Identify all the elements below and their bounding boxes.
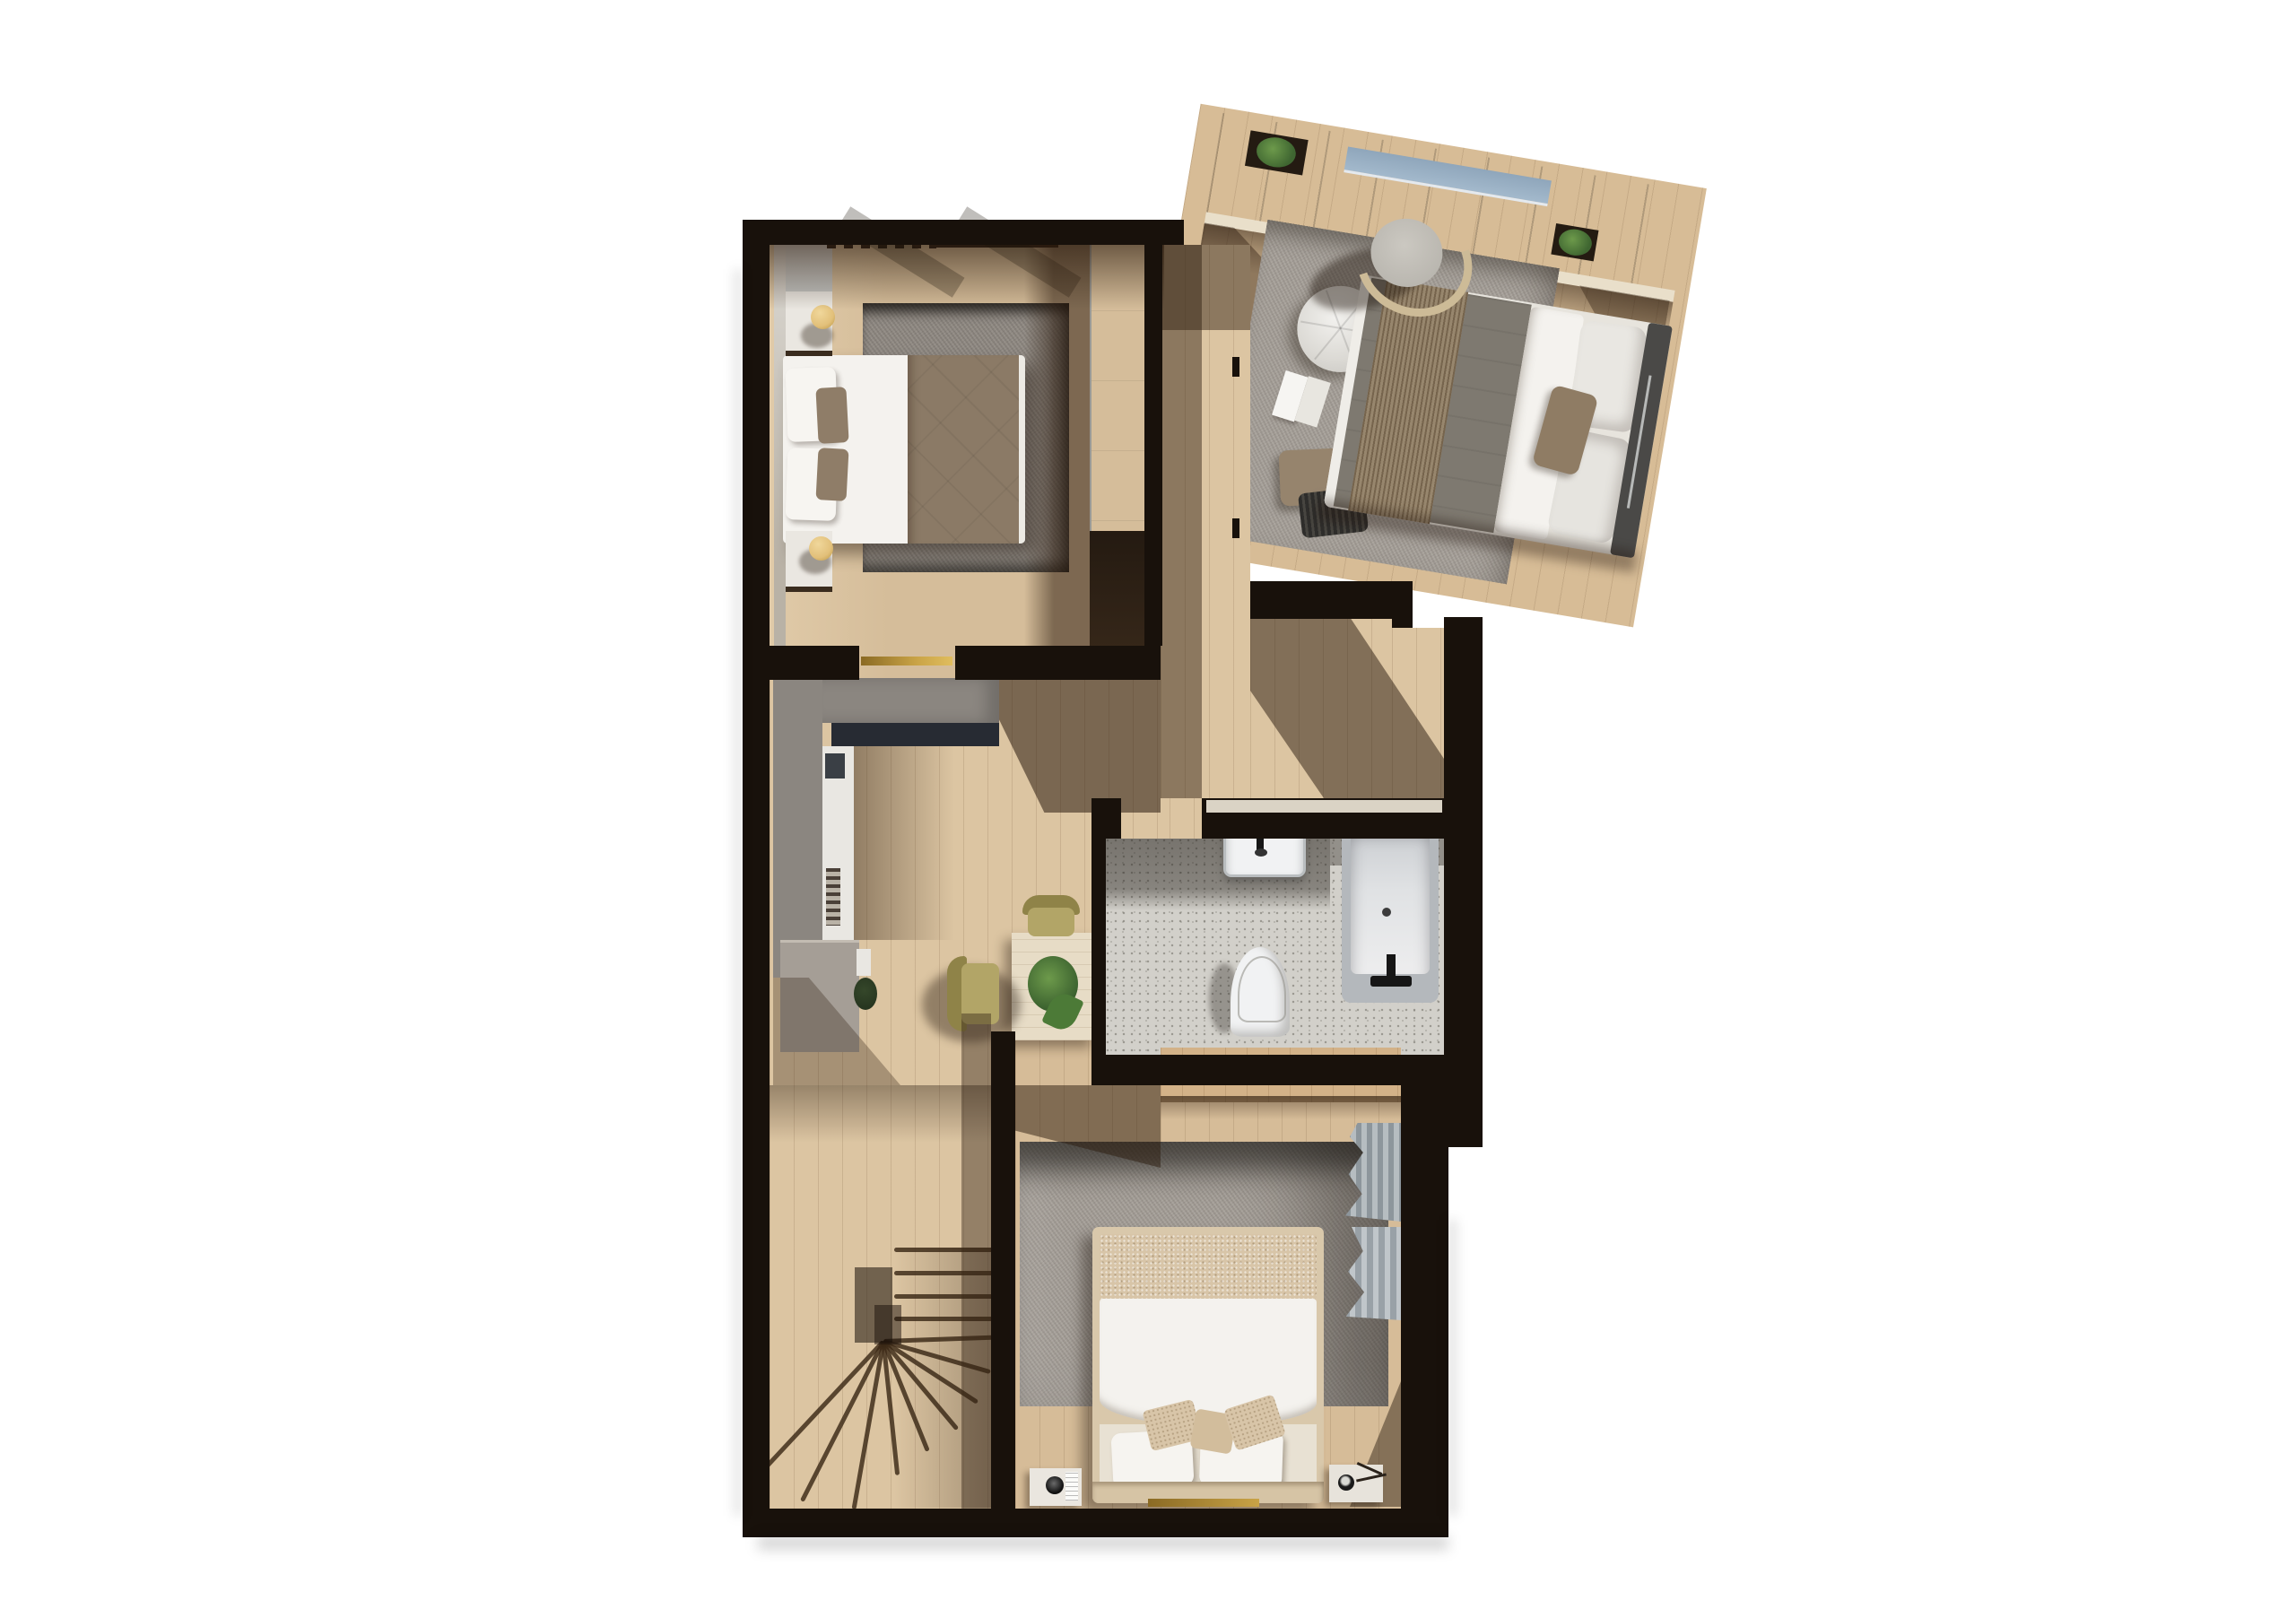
small-plant xyxy=(854,978,877,1010)
sphere-lamp-gold xyxy=(811,305,835,329)
wall-exterior-top xyxy=(743,220,1184,245)
wall-bedroom2-left xyxy=(991,1031,1015,1509)
wall-exterior-right-upper xyxy=(1444,617,1483,1147)
bathtub-inner xyxy=(1351,823,1430,974)
notebook xyxy=(1065,1472,1078,1501)
bedroom2-bed xyxy=(1092,1227,1324,1503)
drop-shadow-left xyxy=(734,269,743,1516)
white-duvet xyxy=(1100,1299,1317,1426)
wall-bedroom1-bottom-a xyxy=(770,646,859,680)
brass-threshold xyxy=(861,657,952,665)
stair-tread xyxy=(894,1248,995,1252)
tub-drain xyxy=(1382,908,1391,917)
stair-tread xyxy=(894,1317,995,1321)
wall-bathroom-left xyxy=(1091,798,1106,1085)
wall-bedroom1-right xyxy=(1144,245,1162,646)
lamp-black xyxy=(1046,1476,1064,1494)
bedroom1-bed xyxy=(783,355,1025,544)
cabinet-door-white xyxy=(857,949,871,976)
lamp-black xyxy=(1338,1474,1354,1491)
stair-tread xyxy=(894,1271,995,1275)
tub-mixer-bar xyxy=(1370,976,1412,987)
shelf-items xyxy=(825,753,845,779)
bathroom-sill-line xyxy=(1206,800,1442,813)
desk-inset-shelf-navy xyxy=(831,723,999,746)
vestibule-floor-b xyxy=(1392,628,1444,798)
wall-bathroom-bottom xyxy=(1091,1055,1480,1085)
chair-olive-top-seat xyxy=(1028,908,1074,936)
chair-olive-left-seat xyxy=(961,963,999,1024)
stair-tread xyxy=(894,1294,995,1299)
pillow-taupe xyxy=(815,387,848,444)
basin-drain xyxy=(1255,848,1267,857)
wall-exterior-left xyxy=(743,220,770,1537)
desk-unit-column xyxy=(773,678,822,978)
brass-floor-strip xyxy=(1148,1499,1259,1507)
vestibule-floor xyxy=(1250,619,1392,798)
wall-exterior-right-lower xyxy=(1401,1085,1448,1537)
pillow-taupe xyxy=(816,448,849,501)
shelf-items xyxy=(826,868,840,926)
desk-unit-top xyxy=(822,678,999,723)
low-cabinet xyxy=(780,940,859,1052)
sphere-lamp-gold xyxy=(809,536,833,561)
boucle-blanket xyxy=(1100,1234,1317,1300)
floor-plan-3d-render xyxy=(0,0,2296,1618)
duvet-white-rim xyxy=(1019,355,1025,544)
wall-bedroom1-bottom-b xyxy=(955,646,1161,680)
duvet-taupe xyxy=(908,355,1019,544)
door-jamb-mark xyxy=(1232,357,1239,377)
curtains xyxy=(1345,1123,1401,1222)
door-jamb-mark xyxy=(1232,518,1239,538)
wardrobe-white xyxy=(1090,240,1148,531)
wall-exterior-bottom xyxy=(743,1509,1448,1537)
drop-shadow-bottom xyxy=(758,1535,1448,1550)
wall-panel-mirror xyxy=(786,242,832,292)
